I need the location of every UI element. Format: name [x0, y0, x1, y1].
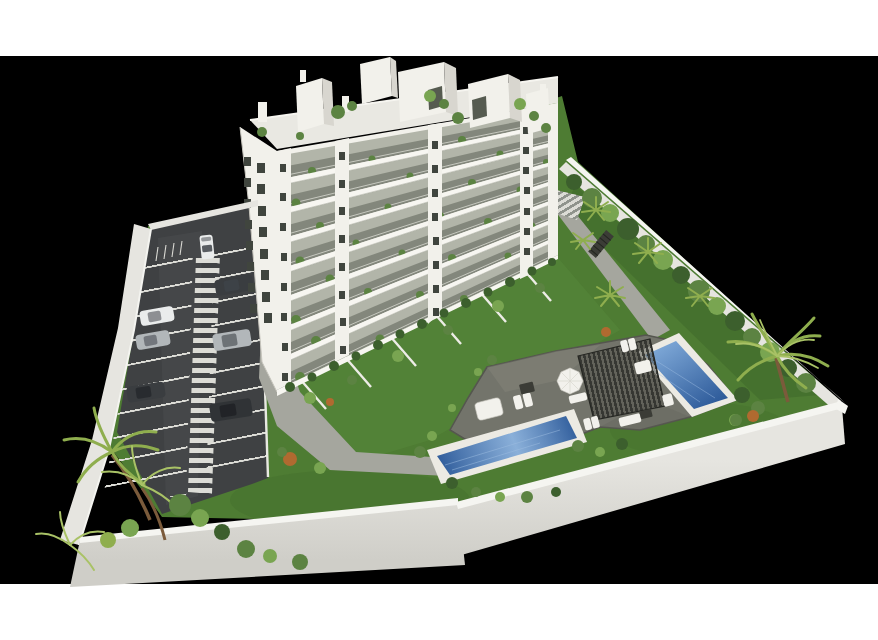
- car-white-driving: [199, 234, 214, 259]
- architectural-render: [0, 0, 878, 640]
- render-canvas: [0, 0, 878, 640]
- parasol: [557, 368, 583, 394]
